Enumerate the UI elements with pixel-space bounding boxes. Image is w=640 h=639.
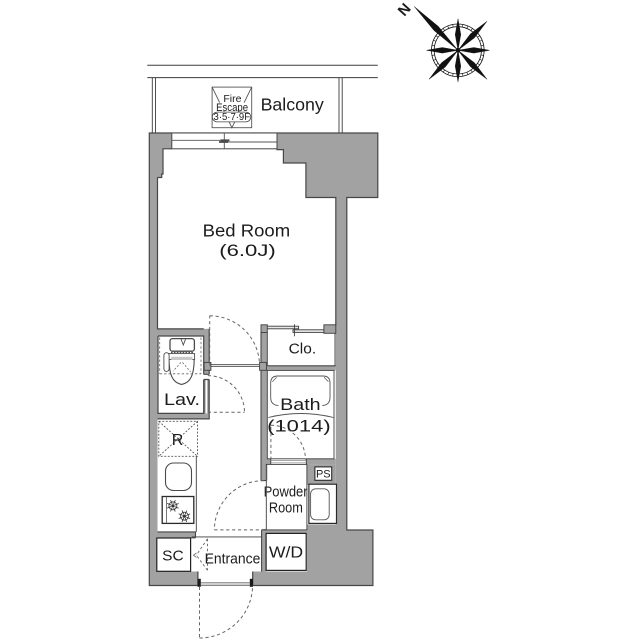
svg-text:W/D: W/D	[269, 544, 303, 561]
svg-text:SC: SC	[162, 549, 184, 565]
svg-text:PS: PS	[316, 468, 331, 480]
svg-text:Balcony: Balcony	[261, 95, 324, 115]
svg-text:Powder: Powder	[264, 483, 308, 500]
svg-text:(1014): (1014)	[267, 416, 331, 435]
svg-text:R: R	[172, 432, 184, 449]
svg-text:Bath: Bath	[280, 396, 321, 414]
svg-text:Entrance: Entrance	[205, 551, 261, 568]
svg-text:Lav.: Lav.	[164, 391, 200, 409]
svg-text:Clo.: Clo.	[289, 342, 317, 358]
svg-text:Bed Room: Bed Room	[203, 221, 291, 241]
svg-text:Room: Room	[269, 499, 303, 516]
svg-text:3·5·7·9F: 3·5·7·9F	[214, 111, 251, 123]
svg-text:(6.0J): (6.0J)	[219, 242, 276, 260]
